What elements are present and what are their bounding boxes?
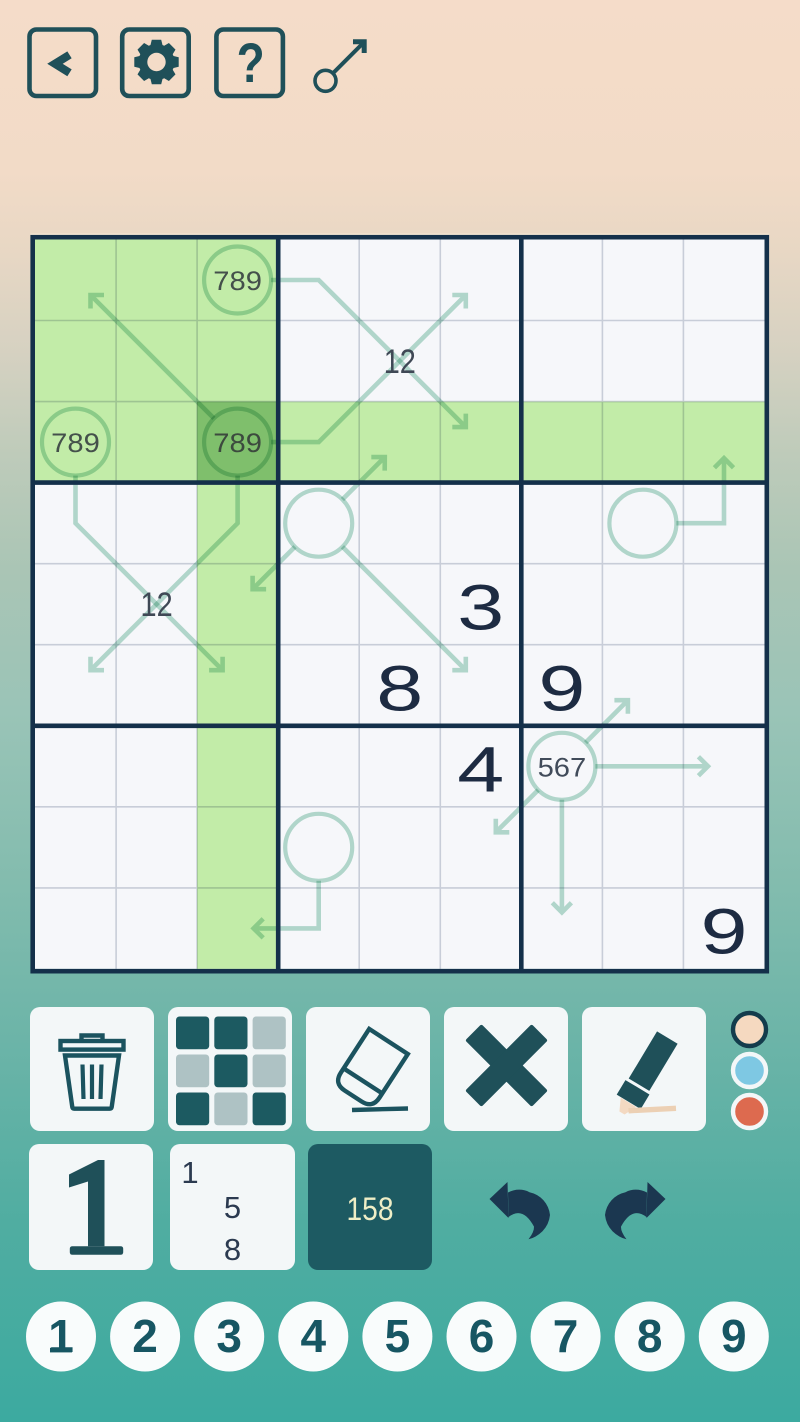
svg-text:4: 4 bbox=[457, 733, 504, 805]
svg-text:1: 1 bbox=[181, 1155, 198, 1190]
svg-text:2: 2 bbox=[132, 1310, 158, 1362]
svg-text:12: 12 bbox=[141, 585, 173, 624]
svg-text:4: 4 bbox=[301, 1310, 327, 1362]
svg-text:12: 12 bbox=[384, 342, 416, 381]
svg-text:3: 3 bbox=[457, 571, 504, 643]
svg-text:?: ? bbox=[237, 32, 265, 94]
svg-text:158: 158 bbox=[347, 1192, 394, 1227]
svg-text:8: 8 bbox=[376, 652, 423, 724]
svg-text:9: 9 bbox=[701, 896, 748, 968]
svg-text:9: 9 bbox=[721, 1310, 747, 1362]
svg-text:8: 8 bbox=[224, 1232, 241, 1267]
svg-text:567: 567 bbox=[538, 752, 587, 782]
svg-text:789: 789 bbox=[213, 266, 262, 296]
svg-text:5: 5 bbox=[224, 1190, 241, 1225]
svg-text:3: 3 bbox=[216, 1310, 242, 1362]
svg-text:9: 9 bbox=[538, 652, 585, 724]
svg-text:1: 1 bbox=[48, 1310, 74, 1362]
svg-text:8: 8 bbox=[637, 1310, 663, 1362]
svg-text:6: 6 bbox=[469, 1310, 495, 1362]
svg-text:789: 789 bbox=[51, 428, 100, 458]
svg-text:5: 5 bbox=[385, 1310, 411, 1362]
svg-text:789: 789 bbox=[213, 428, 262, 458]
svg-text:7: 7 bbox=[553, 1310, 579, 1362]
